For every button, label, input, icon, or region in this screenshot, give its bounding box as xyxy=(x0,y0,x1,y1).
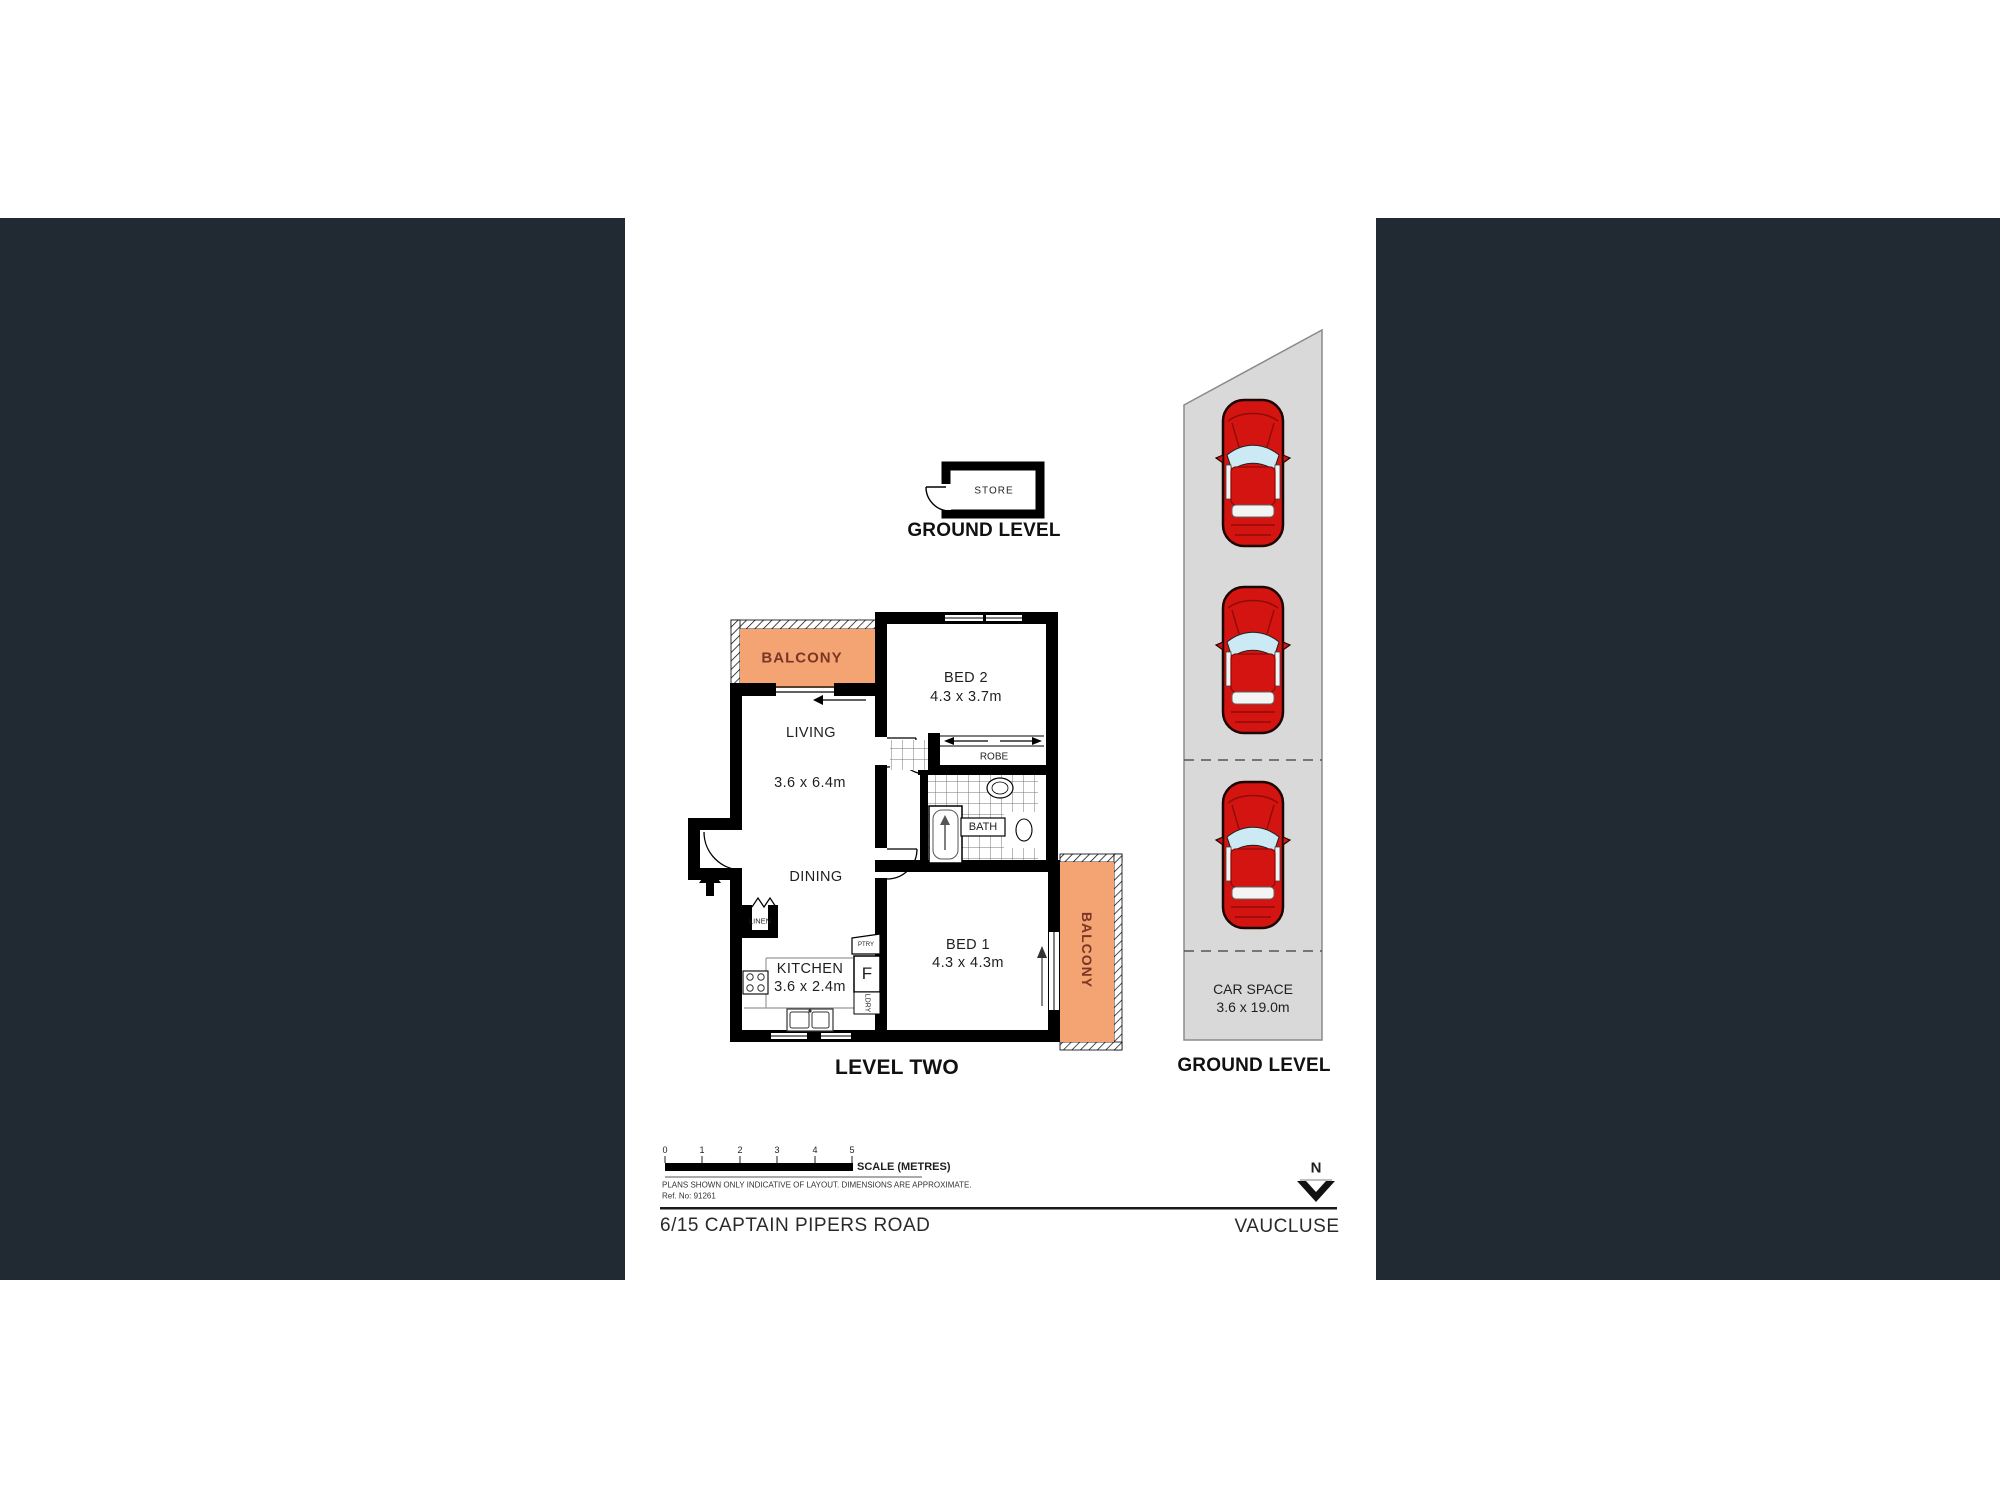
bed1-door-arrow xyxy=(1037,946,1047,1006)
car-space-dims: 3.6 x 19.0m xyxy=(1216,999,1289,1015)
bed2-label: BED 2 xyxy=(944,670,988,686)
scale-tick: 4 xyxy=(812,1145,817,1155)
level-two-title: LEVEL TWO xyxy=(835,1056,959,1080)
north-label: N xyxy=(1311,1160,1322,1177)
kitchen-dims: 3.6 x 2.4m xyxy=(774,979,846,995)
car-space-strip xyxy=(1184,330,1322,1040)
address-text: 6/15 CAPTAIN PIPERS ROAD xyxy=(660,1215,930,1237)
kitchen-label: KITCHEN xyxy=(777,961,843,977)
bed1-dims: 4.3 x 4.3m xyxy=(932,955,1004,971)
ref-number: Ref. No: 91261 xyxy=(662,1192,716,1201)
floorplan-graphics xyxy=(0,0,2000,1500)
north-arrow-icon xyxy=(1297,1180,1335,1202)
robe-slider xyxy=(932,736,1044,746)
bath-label: BATH xyxy=(969,821,998,833)
car-icon xyxy=(1216,782,1290,928)
fridge-label: F xyxy=(862,964,872,984)
scale-tick: 2 xyxy=(737,1145,742,1155)
scale-tick: 1 xyxy=(699,1145,704,1155)
laundry-label: LDRY xyxy=(864,994,871,1013)
floorplan-page: STORE GROUND LEVEL BALCONY BED 2 4.3 x 3… xyxy=(0,0,2000,1500)
scale-label: SCALE (METRES) xyxy=(857,1161,951,1173)
stove-icon xyxy=(743,971,768,994)
bathroom xyxy=(890,740,1038,863)
robe-label: ROBE xyxy=(980,752,1008,763)
scale-tick: 5 xyxy=(849,1145,854,1155)
car-icon xyxy=(1216,587,1290,733)
car-space-label: CAR SPACE xyxy=(1213,981,1293,997)
living-dims: 3.6 x 6.4m xyxy=(774,775,846,791)
store-label: STORE xyxy=(974,486,1013,497)
car-icon xyxy=(1216,400,1290,546)
basin-icon xyxy=(1016,819,1032,841)
dining-label: DINING xyxy=(789,869,842,885)
pantry-label: PTRY xyxy=(858,942,874,948)
balcony-top-label: BALCONY xyxy=(761,650,842,667)
bed1-label: BED 1 xyxy=(946,937,990,953)
linen-label: LINEN xyxy=(749,917,771,926)
ground-level-right-title: GROUND LEVEL xyxy=(1177,1055,1330,1077)
suburb-text: VAUCLUSE xyxy=(1234,1216,1339,1238)
balcony-right-label: BALCONY xyxy=(1079,912,1095,988)
scale-tick: 0 xyxy=(662,1145,667,1155)
living-label: LIVING xyxy=(786,725,836,741)
scale-tick: 3 xyxy=(774,1145,779,1155)
level-two-plan xyxy=(688,612,1122,1050)
disclaimer-text: PLANS SHOWN ONLY INDICATIVE OF LAYOUT. D… xyxy=(662,1181,972,1190)
ground-level-top-title: GROUND LEVEL xyxy=(907,520,1060,542)
footer-rule xyxy=(660,1207,1337,1210)
bed2-dims: 4.3 x 3.7m xyxy=(930,689,1002,705)
